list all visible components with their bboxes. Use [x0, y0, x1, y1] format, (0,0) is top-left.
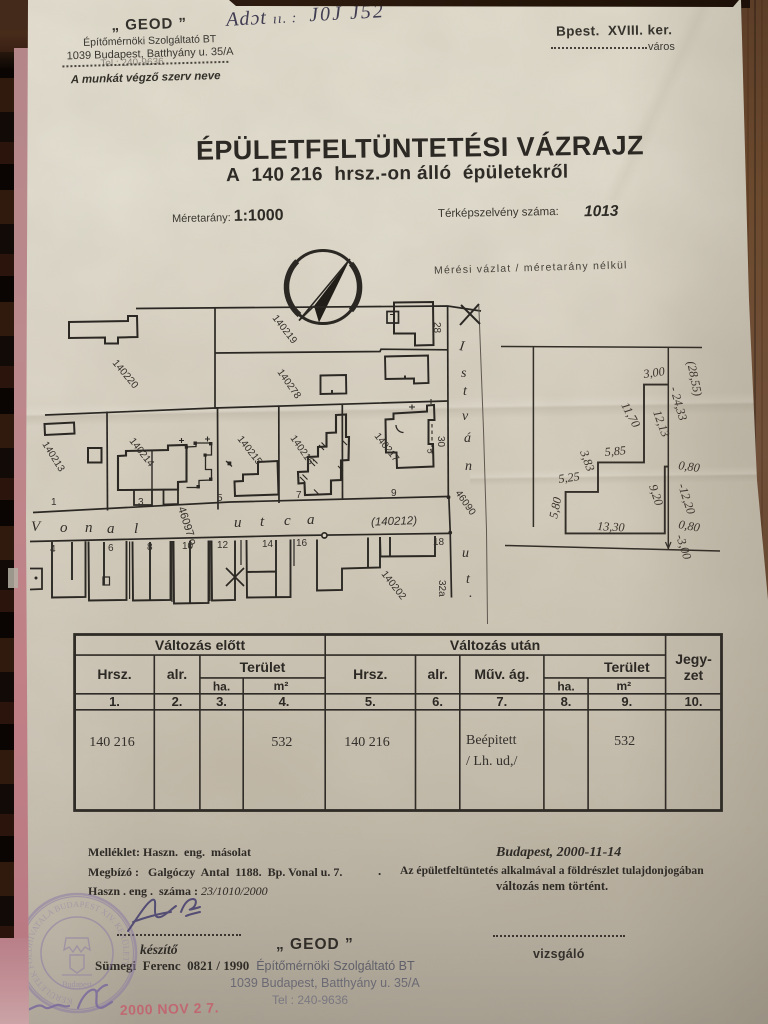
svg-text:2000 NOV 2 7.: 2000 NOV 2 7. [120, 999, 220, 1018]
svg-text:KERÜLETEK FÖLDHIVATALA BUDAPES: KERÜLETEK FÖLDHIVATALA BUDAPEST XIV. KER… [23, 899, 131, 1007]
svg-text:Budapest: Budapest [62, 980, 93, 989]
